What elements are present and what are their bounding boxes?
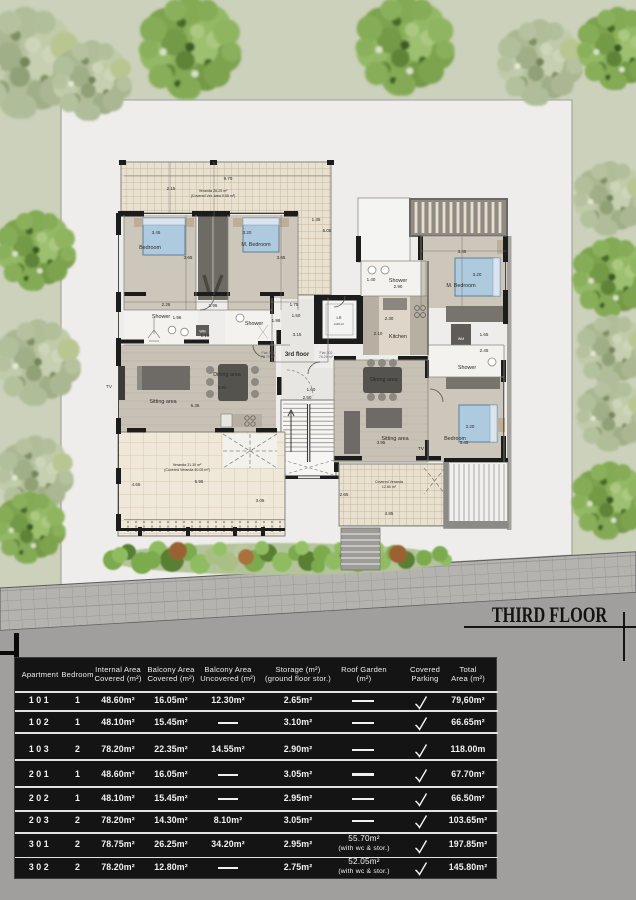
svg-text:4.00 m²: 4.00 m² [334, 322, 344, 326]
svg-text:1.65: 1.65 [480, 332, 489, 337]
svg-text:6.05: 6.05 [323, 228, 332, 233]
svg-text:WM: WM [199, 330, 205, 334]
svg-text:1.75: 1.75 [290, 302, 299, 307]
svg-text:78.75 m²: 78.75 m² [261, 355, 276, 359]
svg-text:2.50: 2.50 [303, 395, 312, 400]
svg-text:1.40: 1.40 [367, 277, 376, 282]
svg-text:Bedroom: Bedroom [139, 245, 161, 251]
svg-text:3rd floor: 3rd floor [285, 352, 310, 358]
svg-text:1.60: 1.60 [307, 387, 316, 392]
svg-text:3.15: 3.15 [293, 332, 302, 337]
svg-text:(Covered Ver. area 9.55 m²): (Covered Ver. area 9.55 m²) [191, 194, 236, 198]
svg-text:Covered Veranda: Covered Veranda [375, 480, 403, 484]
svg-text:3.20: 3.20 [473, 272, 482, 277]
svg-text:2.15: 2.15 [167, 186, 176, 191]
svg-text:Dining area: Dining area [213, 372, 241, 378]
svg-text:Dining area: Dining area [370, 377, 398, 383]
svg-text:4.65: 4.65 [132, 482, 141, 487]
svg-text:2.90: 2.90 [394, 284, 403, 289]
svg-text:Shower: Shower [245, 321, 263, 327]
svg-text:TV: TV [106, 384, 112, 389]
svg-text:Veranda 26.25 m²: Veranda 26.25 m² [199, 189, 228, 193]
svg-text:Veranda 31.30 m²: Veranda 31.30 m² [173, 463, 202, 467]
svg-text:6.95: 6.95 [195, 479, 204, 484]
svg-text:3.65: 3.65 [184, 255, 193, 260]
svg-text:2.45: 2.45 [480, 348, 489, 353]
svg-text:Kitchen: Kitchen [389, 334, 407, 340]
svg-text:Bedroom: Bedroom [444, 436, 466, 442]
svg-text:3.65: 3.65 [277, 255, 286, 260]
svg-text:3.92: 3.92 [218, 385, 227, 390]
svg-text:1.98: 1.98 [272, 318, 281, 323]
svg-text:Shower: Shower [458, 365, 476, 371]
svg-text:3.20: 3.20 [243, 230, 252, 235]
svg-text:M. Bedroom: M. Bedroom [241, 242, 271, 248]
svg-text:TV: TV [418, 446, 424, 451]
svg-text:Sitting area: Sitting area [149, 399, 176, 405]
svg-text:2.26: 2.26 [162, 302, 171, 307]
svg-text:2.10: 2.10 [374, 331, 383, 336]
svg-text:Shower: Shower [152, 314, 170, 320]
svg-text:1.50: 1.50 [292, 313, 301, 318]
svg-text:LR: LR [336, 315, 341, 320]
svg-text:(Covered Veranda 40.05 m²): (Covered Veranda 40.05 m²) [164, 468, 210, 472]
svg-text:2.30: 2.30 [385, 316, 394, 321]
svg-text:6.35: 6.35 [191, 403, 200, 408]
svg-text:3.45: 3.45 [152, 230, 161, 235]
svg-text:M. Bedroom: M. Bedroom [446, 283, 476, 289]
svg-text:2.65: 2.65 [340, 492, 349, 497]
svg-text:1.95: 1.95 [209, 303, 218, 308]
svg-text:1.96: 1.96 [173, 315, 182, 320]
svg-text:3.05: 3.05 [256, 498, 265, 503]
svg-text:WM: WM [458, 337, 464, 341]
svg-text:Shower: Shower [389, 278, 407, 284]
svg-text:3.45: 3.45 [458, 249, 467, 254]
svg-text:78.20 m²: 78.20 m² [319, 355, 334, 359]
svg-text:4.85: 4.85 [385, 511, 394, 516]
svg-text:1.35: 1.35 [312, 217, 321, 222]
svg-text:3.20: 3.20 [466, 424, 475, 429]
svg-text:Sitting area: Sitting area [381, 436, 408, 442]
svg-text:9.70: 9.70 [224, 176, 233, 181]
svg-text:1.10: 1.10 [201, 333, 210, 338]
svg-text:12.60 m²: 12.60 m² [382, 485, 397, 489]
